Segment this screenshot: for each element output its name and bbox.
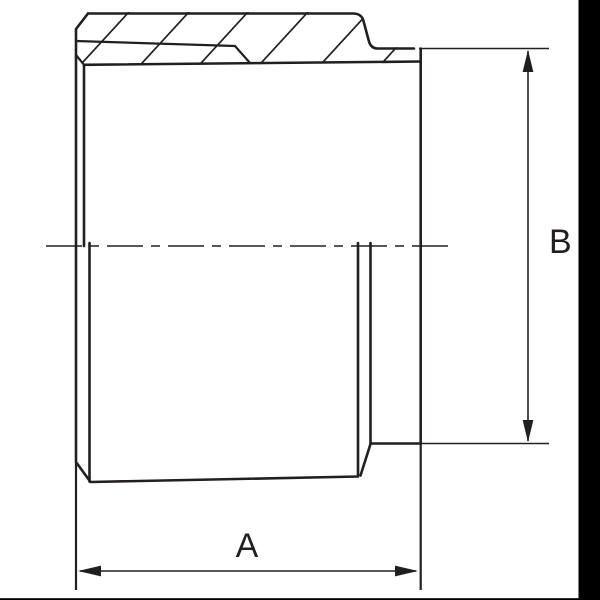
outline-lower-step-bevel — [361, 243, 371, 476]
screen-edge-strip-right — [579, 0, 600, 600]
dimension-label-b: B — [549, 223, 572, 261]
arrowhead-up-icon — [523, 50, 534, 72]
arrowhead-right-icon — [395, 566, 418, 577]
hatch-line — [377, 9, 432, 69]
hatch-line — [256, 9, 311, 69]
outline-left-and-bottom-edge — [76, 14, 358, 483]
outline-groove-line — [76, 41, 250, 63]
section-hatching — [77, 9, 432, 69]
drawing-canvas: A B — [0, 0, 600, 600]
hatch-line — [196, 9, 251, 69]
dimension-a — [76, 444, 421, 591]
arrowhead-left-icon — [78, 566, 101, 577]
outline-bore-line — [84, 62, 421, 247]
arrowhead-down-icon — [523, 420, 534, 442]
ferrule-section-technical-drawing: A B — [0, 0, 600, 600]
dimension-label-a: A — [236, 527, 259, 565]
hatch-line — [137, 9, 192, 69]
part-outline — [76, 14, 421, 483]
